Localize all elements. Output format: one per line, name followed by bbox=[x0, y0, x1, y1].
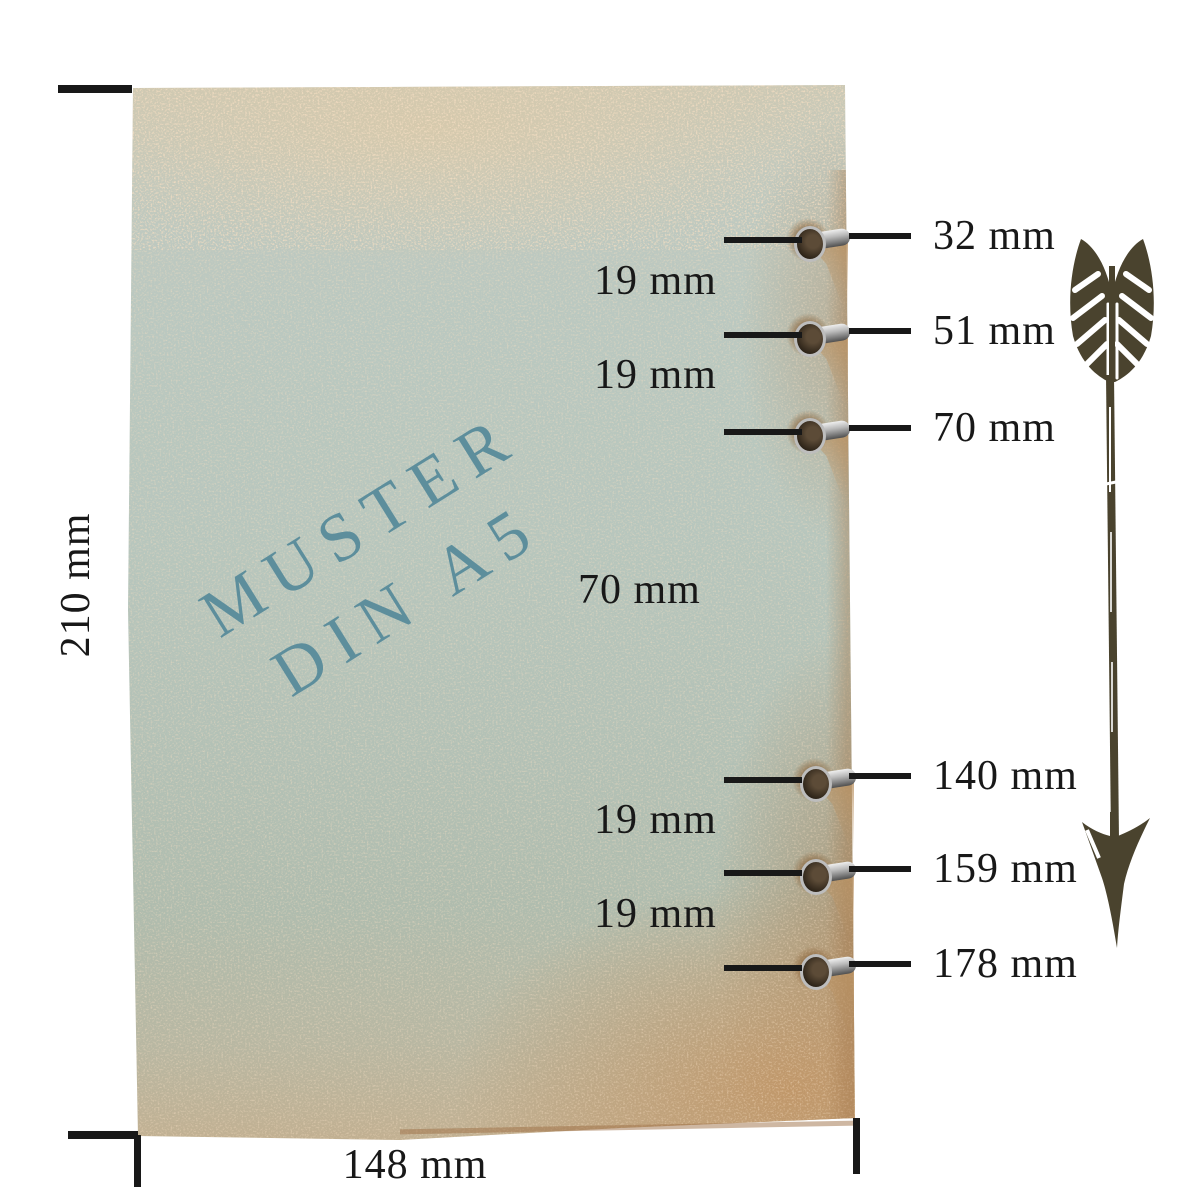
measurement-label: 159 mm bbox=[933, 845, 1078, 893]
leader-line bbox=[849, 233, 911, 239]
spacing-label: 70 mm bbox=[578, 566, 701, 614]
dimension-tick-bottom-left-vertical bbox=[134, 1135, 141, 1187]
leader-line bbox=[849, 773, 911, 779]
measurement-label: 51 mm bbox=[933, 307, 1056, 355]
down-arrow-icon bbox=[1060, 232, 1164, 956]
measurement-callout: 70 mm bbox=[849, 400, 1056, 456]
dimension-tick-bottom-left-horizontal bbox=[68, 1131, 138, 1139]
hole-pointer-line bbox=[724, 237, 802, 243]
hole-pointer-line bbox=[724, 870, 802, 876]
dimension-tick-bottom-right bbox=[853, 1118, 860, 1174]
spacing-label: 19 mm bbox=[594, 257, 717, 305]
measurement-label: 178 mm bbox=[933, 940, 1078, 988]
spacing-label: 19 mm bbox=[594, 796, 717, 844]
eyelet-hole bbox=[794, 321, 826, 357]
eyelet-hole bbox=[800, 766, 832, 802]
measurement-callout: 51 mm bbox=[849, 303, 1056, 359]
leader-line bbox=[849, 961, 911, 967]
hole-pointer-line bbox=[724, 429, 802, 435]
eyelet-hole bbox=[800, 954, 832, 990]
leader-line bbox=[849, 866, 911, 872]
measurement-label: 32 mm bbox=[933, 212, 1056, 260]
measurement-callout: 178 mm bbox=[849, 936, 1078, 992]
width-dimension-label: 148 mm bbox=[315, 1141, 515, 1189]
measurement-label: 140 mm bbox=[933, 752, 1078, 800]
measurement-label: 70 mm bbox=[933, 404, 1056, 452]
hole-pointer-line bbox=[724, 777, 802, 783]
leader-line bbox=[849, 328, 911, 334]
eyelet-hole bbox=[800, 859, 832, 895]
measurement-callout: 140 mm bbox=[849, 748, 1078, 804]
din-a5-cover-dimension-diagram: MUSTER DIN A5 bbox=[0, 0, 1200, 1200]
measurement-callout: 32 mm bbox=[849, 208, 1056, 264]
spacing-label: 19 mm bbox=[594, 890, 717, 938]
eyelet-hole bbox=[794, 226, 826, 262]
hole-pointer-line bbox=[724, 965, 802, 971]
height-dimension-label: 210 mm bbox=[52, 475, 108, 695]
measurement-callout: 159 mm bbox=[849, 841, 1078, 897]
leader-line bbox=[849, 425, 911, 431]
spacing-label: 19 mm bbox=[594, 351, 717, 399]
dimension-tick-top-left bbox=[58, 85, 132, 93]
hole-pointer-line bbox=[724, 332, 802, 338]
eyelet-hole bbox=[794, 418, 826, 454]
